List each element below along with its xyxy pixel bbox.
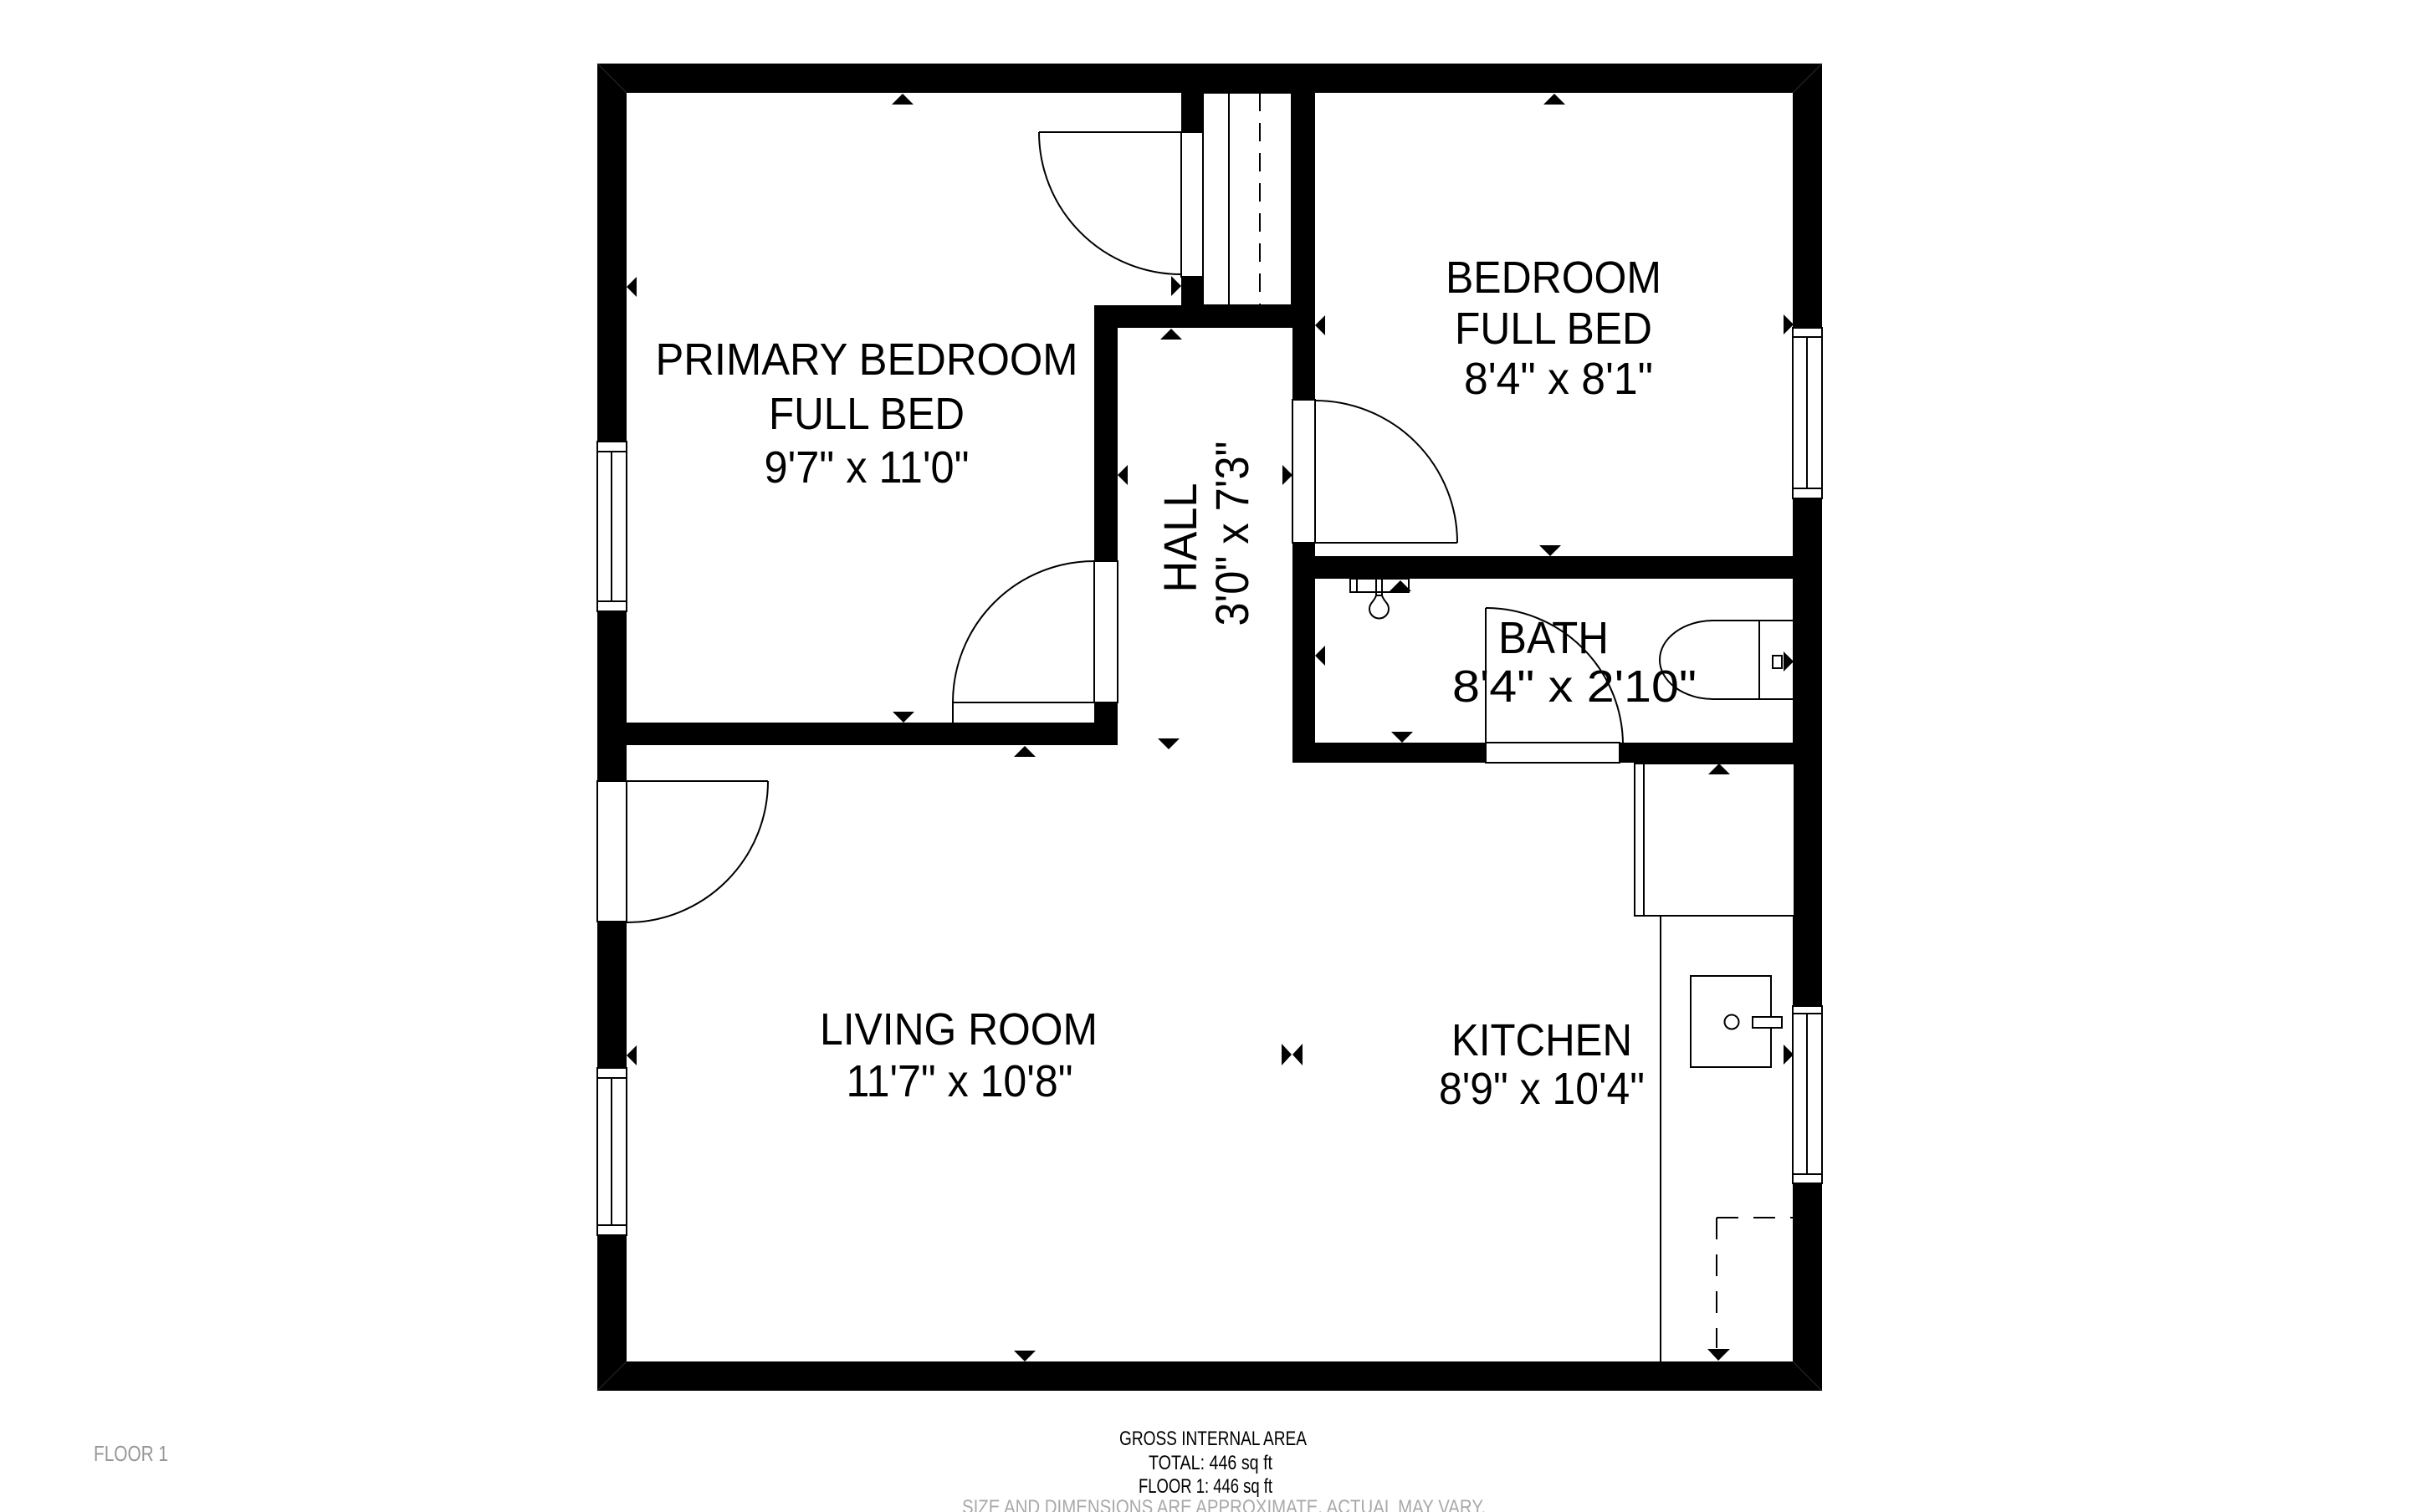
svg-text:FULL BED: FULL BED: [769, 389, 965, 439]
svg-text:8'9" x 10'4": 8'9" x 10'4": [1439, 1064, 1645, 1114]
svg-text:11'7" x 10'8": 11'7" x 10'8": [847, 1056, 1073, 1106]
svg-text:PRIMARY BEDROOM: PRIMARY BEDROOM: [656, 335, 1078, 385]
svg-text:FLOOR 1: 446 sq ft: FLOOR 1: 446 sq ft: [1139, 1475, 1272, 1498]
svg-text:8'4" x 8'1": 8'4" x 8'1": [1464, 354, 1653, 404]
svg-text:9'7" x 11'0": 9'7" x 11'0": [765, 442, 970, 493]
svg-text:8'4" x 2'10": 8'4" x 2'10": [1452, 661, 1697, 712]
svg-text:HALL: HALL: [1154, 483, 1206, 593]
svg-text:FLOOR 1: FLOOR 1: [94, 1441, 168, 1466]
svg-text:BEDROOM: BEDROOM: [1446, 253, 1661, 303]
svg-text:LIVING ROOM: LIVING ROOM: [820, 1004, 1098, 1055]
svg-text:FULL BED: FULL BED: [1455, 304, 1652, 354]
svg-text:3'0" x 7'3": 3'0" x 7'3": [1205, 442, 1258, 626]
svg-text:SIZE AND DIMENSIONS ARE APPROX: SIZE AND DIMENSIONS ARE APPROXIMATE, ACT…: [962, 1496, 1486, 1512]
svg-text:TOTAL: 446 sq ft: TOTAL: 446 sq ft: [1149, 1452, 1272, 1474]
svg-text:GROSS INTERNAL AREA: GROSS INTERNAL AREA: [1119, 1428, 1307, 1450]
svg-text:KITCHEN: KITCHEN: [1451, 1015, 1632, 1065]
svg-text:BATH: BATH: [1498, 613, 1609, 663]
